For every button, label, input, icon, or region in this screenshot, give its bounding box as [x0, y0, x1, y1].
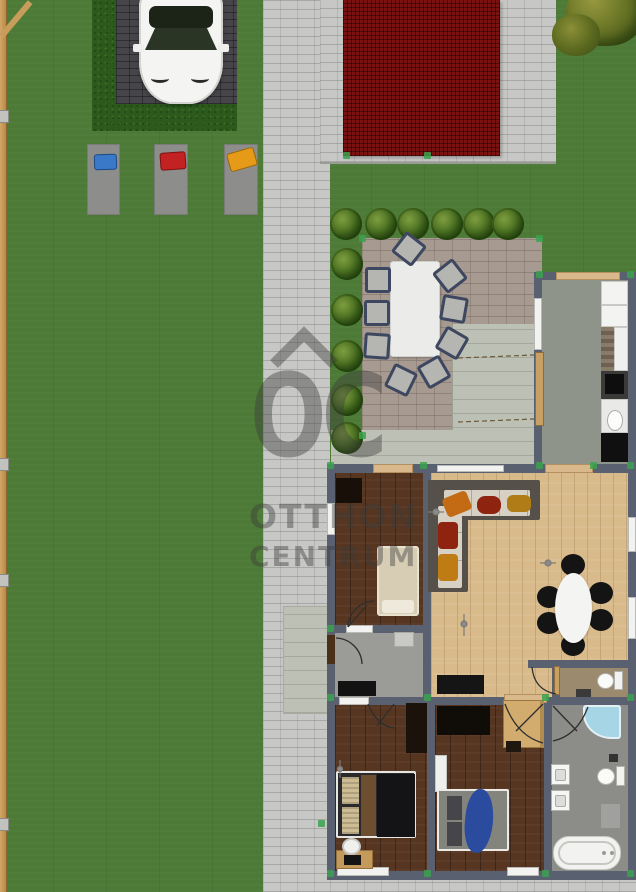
corner-handle [542, 870, 549, 877]
bathtub-inner [558, 841, 616, 865]
parked-car [139, 0, 223, 104]
wall-hall-living [423, 625, 431, 705]
floor-plan-canvas: OC OTTHON CENTRUM [0, 0, 636, 892]
entry-steps [283, 606, 329, 714]
door-wc [554, 666, 560, 695]
front-door [327, 635, 335, 664]
window-bedroom3-bottom [507, 867, 539, 876]
wall-dining-bottom [528, 660, 636, 668]
corner-handle [590, 462, 597, 469]
wall-bed1-hall [327, 625, 431, 633]
corner-handle [420, 462, 427, 469]
door-kitchen [535, 352, 544, 426]
bed-double [437, 789, 509, 851]
cooktop [605, 374, 624, 394]
wall-bed3-bath [544, 697, 552, 880]
lintel-kitchen-window [556, 272, 620, 280]
washbasin [551, 764, 570, 785]
table-lamp [342, 838, 361, 855]
washbasin [551, 790, 570, 811]
sink-counter [601, 399, 628, 433]
corner-handle [536, 271, 543, 278]
bush [330, 208, 362, 240]
dining-chair [589, 582, 613, 604]
pillow [447, 822, 462, 846]
wall-shelf [435, 755, 447, 792]
patio-chair [364, 300, 390, 326]
corner-handle [327, 694, 334, 701]
car-roof [149, 6, 213, 28]
car-headlight-left [151, 74, 169, 83]
bush [463, 208, 495, 240]
wardrobe [437, 706, 490, 735]
pillow [342, 807, 359, 834]
patio-chair [439, 294, 469, 324]
bath-faucet [610, 851, 614, 855]
doormat [338, 681, 376, 696]
toilet [597, 768, 615, 785]
window-kitchen-left [534, 298, 542, 350]
toilet [597, 673, 614, 689]
corner-handle [627, 694, 634, 701]
watermark-monogram: OC [250, 360, 383, 475]
fence-post [0, 574, 9, 587]
fence-post [0, 110, 9, 123]
corner-handle [327, 870, 334, 877]
bed-double [336, 771, 416, 838]
sofa-pillow-orange [438, 554, 458, 581]
bush [365, 208, 397, 240]
sofa-pillow-red [438, 522, 458, 549]
car-headlight-right [191, 74, 209, 83]
lintel-kitchen-living-door [545, 464, 593, 473]
sill-bedroom2-door [339, 697, 369, 705]
pillow [342, 777, 359, 804]
corner-handle [627, 870, 634, 877]
toilet-tank [616, 766, 625, 786]
corner-handle [627, 462, 634, 469]
desk-chair [506, 741, 521, 752]
corner-handle [627, 271, 634, 278]
garage-roof [343, 0, 500, 156]
window-living-right-1 [628, 517, 636, 552]
sink [607, 410, 623, 431]
hall-cabinet [394, 632, 414, 647]
kitchen-cabinet [601, 305, 628, 327]
bath-faucet [602, 851, 606, 855]
cistern-button [609, 754, 618, 762]
corner-handle [536, 235, 543, 242]
radio [344, 855, 361, 865]
bush [431, 208, 463, 240]
kitchen-cabinet [601, 281, 628, 305]
window-living-terrace [437, 465, 504, 472]
watermark-line1: OTTHON [249, 500, 418, 533]
hedge-bottom [92, 103, 237, 131]
pillow [447, 796, 462, 820]
car-mirror-left [133, 44, 144, 52]
car-mirror-right [218, 44, 229, 52]
wc-sink [576, 689, 591, 697]
corner-handle [424, 694, 431, 701]
kitchen-counter-black [601, 433, 628, 462]
corner-handle [424, 870, 431, 877]
sill-bedroom1-door [346, 625, 373, 633]
wardrobe [406, 703, 427, 753]
duvet-dark [377, 774, 415, 837]
bush [331, 248, 363, 280]
corner-handle [536, 462, 543, 469]
kitchen-backsplash [601, 327, 614, 371]
fence [0, 0, 7, 892]
rear-sidewalk [330, 880, 636, 892]
dining-chair [589, 609, 613, 631]
bush [492, 208, 524, 240]
corner-handle [359, 235, 366, 242]
basin-bowl [555, 769, 566, 781]
fence-post [0, 458, 9, 471]
window-living-right-2 [628, 597, 636, 639]
patio-chair [365, 267, 391, 293]
cushion-red [159, 151, 186, 171]
corner-handle [327, 625, 334, 632]
fence-post [0, 818, 9, 831]
stove [601, 371, 628, 399]
dining-table [555, 573, 592, 643]
sofa-pillow-red [477, 496, 501, 514]
wall-kitchen-right [628, 272, 636, 468]
corner-handle [424, 152, 431, 159]
wall-mid-horizontal [327, 697, 636, 705]
wall-bed2-bed3 [427, 697, 435, 880]
corner-handle [542, 694, 549, 701]
cushion-blue [94, 154, 118, 171]
corner-handle [318, 820, 325, 827]
bathtub [553, 836, 621, 870]
car-windshield [145, 28, 217, 50]
corner-handle [343, 152, 350, 159]
blanket-runner [361, 775, 376, 836]
tv-stand [437, 675, 484, 694]
tree-canopy [552, 14, 600, 56]
kitchen-counter [614, 327, 628, 371]
watermark-line2: CENTRUM [249, 543, 417, 571]
bath-mat [601, 804, 620, 828]
sofa-pillow-amber [507, 495, 531, 512]
pillow [382, 600, 414, 613]
bush [331, 294, 363, 326]
blanket-blue [462, 788, 497, 855]
basin-bowl [555, 795, 566, 807]
toilet-tank [614, 671, 623, 690]
